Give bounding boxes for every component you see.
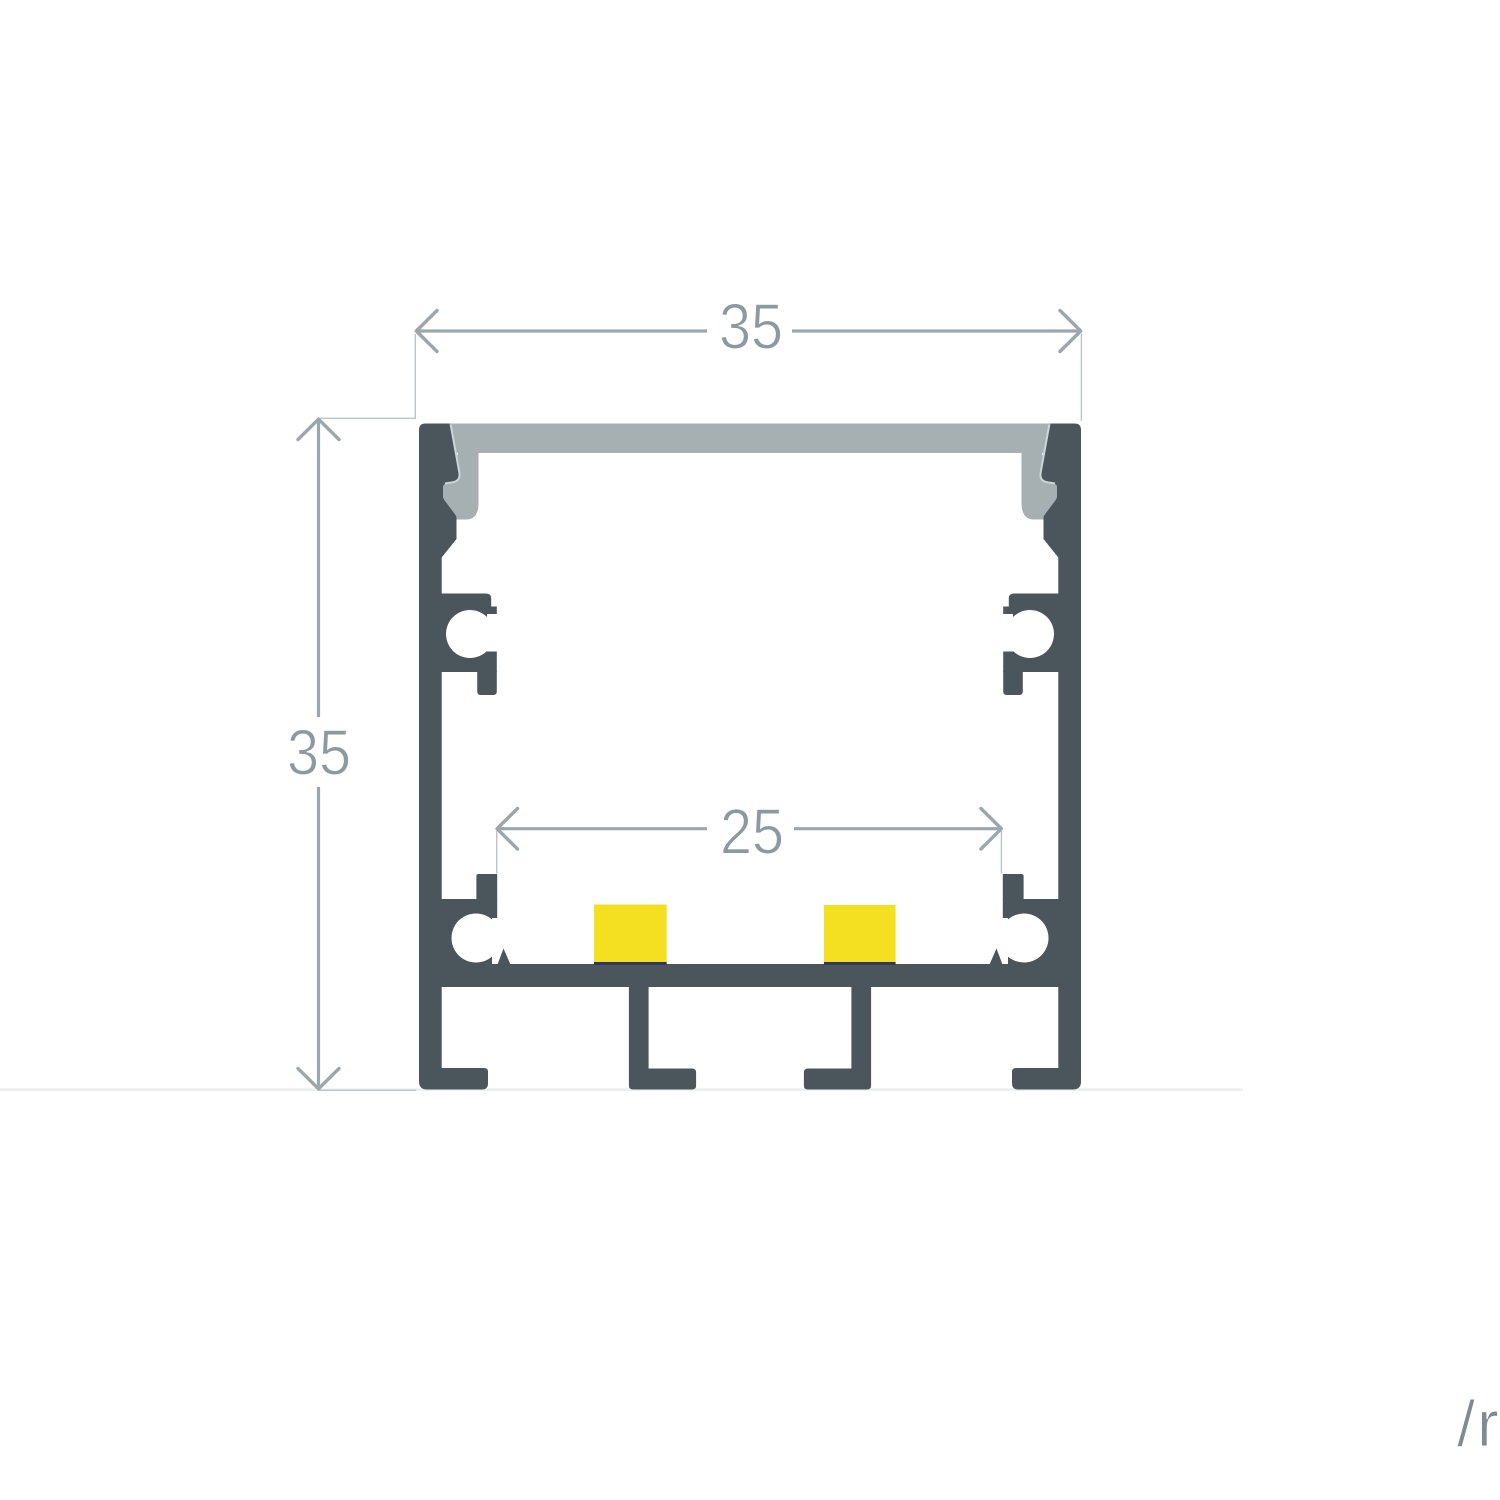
svg-text:/r: /r [1457, 1387, 1500, 1460]
svg-text:35: 35 [287, 717, 351, 788]
svg-text:25: 25 [720, 796, 784, 867]
svg-text:35: 35 [719, 291, 783, 362]
